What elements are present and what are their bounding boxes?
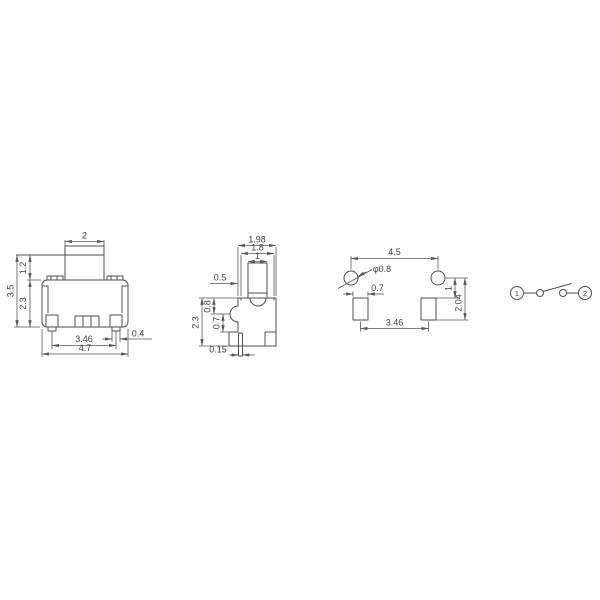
right-pad	[421, 298, 436, 320]
schematic-terminal-2-label: 2	[583, 289, 587, 298]
front-button	[65, 246, 104, 280]
side-dome-contact	[250, 298, 266, 306]
front-button-width-label: 2	[82, 231, 87, 241]
dim-side-boss-height: 0.8	[199, 298, 238, 314]
front-right-tab	[107, 276, 123, 280]
land-pad-pitch-label: 3.46	[386, 318, 404, 328]
land-hole-diameter-label: φ0.8	[373, 264, 391, 274]
front-body-height-label: 2.3	[18, 297, 28, 310]
front-inner-walls	[42, 286, 128, 313]
front-button-height-label: 1.2	[18, 262, 28, 275]
side-boss-height-label: 0.8	[203, 300, 213, 313]
side-body-outline	[229, 298, 276, 346]
side-boss-to-base-label: 0.7	[212, 317, 222, 330]
dim-side-button-offset: 0.5	[210, 273, 238, 284]
front-view: 2 3.5 1.2 2.3 3.46 4.7 0.4	[6, 231, 153, 358]
drawing-page: 2 3.5 1.2 2.3 3.46 4.7 0.4	[0, 0, 600, 600]
schematic-terminal-1-label: 1	[515, 289, 519, 298]
front-left-tab	[47, 276, 63, 280]
schematic-contact-right	[560, 290, 567, 297]
land-pad-width-label: 0.7	[371, 283, 384, 293]
dim-land-hole-pitch: 4.5	[351, 247, 438, 270]
dim-front-button-width: 2	[65, 231, 104, 247]
dim-front-body-height: 2.3	[18, 280, 30, 327]
front-overall-width-label: 4.7	[79, 343, 92, 353]
land-hole-pitch-label: 4.5	[388, 247, 401, 257]
technical-drawing-canvas: 2 3.5 1.2 2.3 3.46 4.7 0.4	[0, 0, 600, 600]
right-hole	[431, 271, 445, 285]
front-body-outline	[42, 280, 128, 327]
side-bottom-step	[265, 332, 276, 346]
side-view: 1.98 1.8 1 0.5 0.8 0.7 2.3	[191, 235, 277, 357]
front-view-part	[16, 246, 128, 331]
land-hole-to-pad-top-label: 1	[444, 286, 454, 291]
left-hole	[344, 271, 358, 285]
dim-front-button-height: 1.2	[18, 255, 30, 280]
dim-land-pad-pitch: 3.46	[361, 318, 429, 332]
side-lead	[239, 333, 243, 356]
side-lead-thickness-label: 0.15	[209, 345, 227, 355]
side-button-offset-label: 0.5	[214, 273, 227, 283]
front-overall-height-label: 3.5	[6, 285, 16, 298]
dim-front-terminal-width: 0.4	[102, 329, 152, 343]
dim-side-boss-to-base: 0.7	[212, 314, 230, 332]
front-right-terminal	[110, 315, 122, 327]
land-pattern-features	[344, 271, 445, 320]
schematic-contact-left	[537, 290, 544, 297]
land-hole-to-pad-bottom-label: 2.04	[454, 294, 464, 312]
side-button-depth-label: 1	[255, 251, 260, 261]
side-body-height-label: 2.3	[191, 316, 201, 329]
left-pad	[353, 298, 368, 320]
schematic-symbol: 1 2	[511, 284, 592, 300]
front-terminal-width-label: 0.4	[132, 329, 145, 339]
front-left-terminal	[46, 315, 58, 327]
schematic-switch-lever	[543, 284, 572, 292]
dim-side-button-depth: 1	[248, 251, 267, 262]
land-pattern-view: 4.5 φ0.8 0.7 3.46 1 2.04	[338, 247, 469, 332]
side-view-part	[229, 263, 276, 356]
